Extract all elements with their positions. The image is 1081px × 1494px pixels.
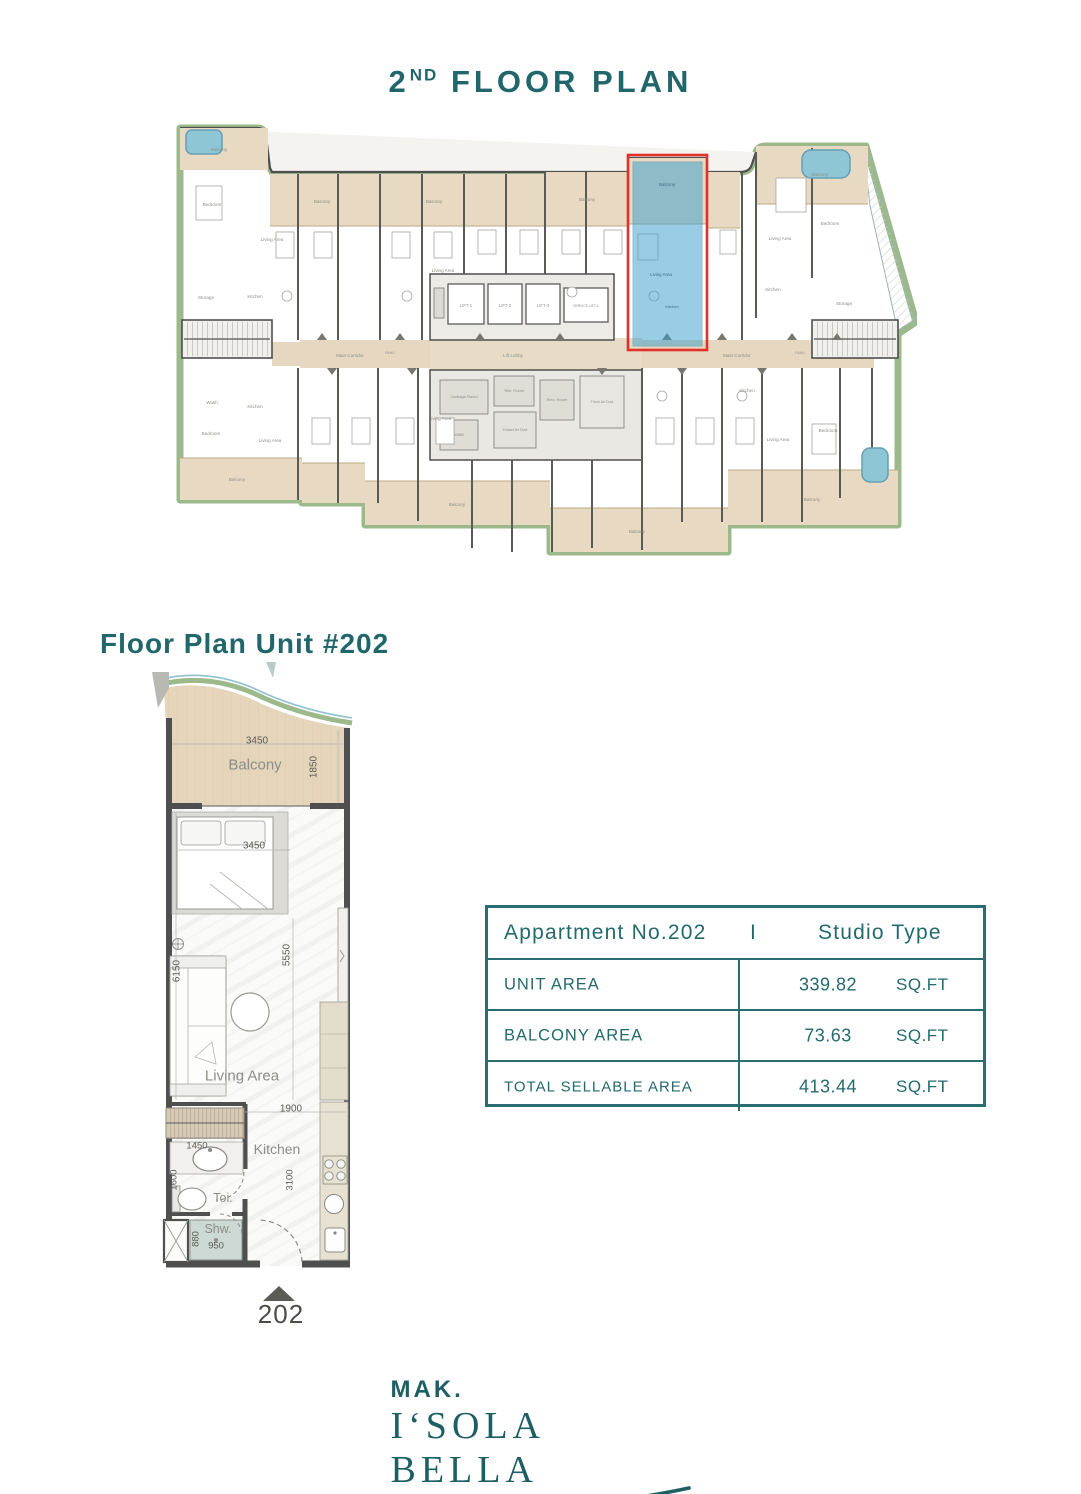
unit-202-highlight-group: Balcony Living Area Kitchen bbox=[628, 155, 707, 350]
bed bbox=[172, 812, 288, 914]
dim-shower-height: 880 bbox=[191, 1231, 202, 1247]
highlight-kitchen-label: Kitchen bbox=[665, 304, 678, 309]
dim-shower-width: 950 bbox=[208, 1241, 224, 1252]
bedroom-label: Bedroom bbox=[819, 428, 838, 433]
balcony-label: Balcony bbox=[804, 497, 821, 502]
brochure-page: 2ND FLOOR PLAN bbox=[0, 0, 1081, 1494]
table-header-type: Studio Type bbox=[818, 921, 942, 945]
lift-lobby-label: Lift Lobby bbox=[503, 353, 524, 358]
garbage-room-label: Garbage Room bbox=[450, 394, 478, 399]
bedroom-label: Bedroom bbox=[202, 431, 221, 436]
dim-kitchen-height: 3100 bbox=[285, 1169, 296, 1190]
lift-3-label: LIFT-3 bbox=[537, 303, 550, 308]
kitchen-label: Kitchen bbox=[247, 294, 263, 299]
balcony-label: Balcony bbox=[426, 199, 443, 204]
unit-info-table: Appartment No.202 I Studio Type UNIT ARE… bbox=[485, 905, 986, 1107]
balcony-label: Balcony bbox=[229, 477, 246, 482]
balcony-label: Balcony bbox=[812, 172, 829, 177]
dim-left-height: 6150 bbox=[172, 960, 183, 982]
unit-floor-plan: 3450 1850 Balcony 3450 6150 5550 Living … bbox=[150, 672, 360, 1278]
storage-label: Storage bbox=[198, 295, 215, 300]
living-area-label: Living Area bbox=[261, 237, 284, 242]
dim-balcony-depth: 1850 bbox=[309, 756, 320, 778]
coffee-table bbox=[231, 993, 269, 1031]
stairs-left bbox=[182, 320, 272, 358]
dim-kitchen-width: 1900 bbox=[280, 1104, 302, 1115]
fahu-label: FAHU bbox=[795, 351, 805, 355]
pool-bottom-right bbox=[862, 448, 888, 482]
living-room-label: Living Area bbox=[205, 1068, 279, 1085]
shower-room-label: Shw. bbox=[204, 1222, 231, 1236]
wash-label: Wash bbox=[206, 400, 218, 405]
brand-logo: MAK. I‘SOLA BELLA bbox=[0, 1376, 1081, 1494]
lift-2-label: LIFT-2 bbox=[499, 303, 512, 308]
project-name: I‘SOLA BELLA bbox=[391, 1404, 691, 1492]
lift-1-label: LIFT-1 bbox=[460, 303, 473, 308]
lift-lobby bbox=[430, 338, 642, 370]
kitchen-counter bbox=[320, 1102, 348, 1260]
fresh-air-duct-label: Fresh Air Duct bbox=[591, 400, 614, 404]
table-row-balcony-area: BALCONY AREA 73.63 SQ.FT bbox=[488, 1011, 983, 1062]
highlight-balcony-label: Balcony bbox=[659, 182, 676, 187]
tele-room-label: Tele. Room bbox=[504, 388, 525, 393]
fahu-label: FAHU bbox=[385, 351, 395, 355]
column-divider bbox=[738, 960, 740, 1009]
lift-core: LIFT-1 LIFT-2 LIFT-3 SERVICE LIFT-1 bbox=[430, 274, 614, 340]
table-header-apartment: Appartment No.202 bbox=[504, 921, 707, 945]
toilet-room-label: Toi. bbox=[213, 1191, 232, 1205]
storage-label: Storage bbox=[836, 301, 853, 306]
table-row-unit-area: UNIT AREA 339.82 SQ.FT bbox=[488, 960, 983, 1011]
balcony-label: Balcony bbox=[314, 199, 331, 204]
elec-room-label: Elec. Room bbox=[547, 397, 568, 402]
balcony-label: Balcony bbox=[579, 197, 596, 202]
main-corridor-label: Main Corridor bbox=[723, 353, 751, 358]
ceiling-fixture-icon bbox=[173, 939, 184, 950]
terrace-glass-edge bbox=[862, 148, 914, 332]
service-lift-label: SERVICE LIFT-1 bbox=[573, 304, 599, 308]
extract-air-duct-label: Extract Air Duct bbox=[503, 428, 528, 432]
wmb-label: WMB bbox=[454, 432, 464, 437]
unit-202-highlight-fill bbox=[633, 162, 702, 346]
cabinet-mid bbox=[320, 1002, 348, 1100]
building-floor-plan: LIFT-1 LIFT-2 LIFT-3 SERVICE LIFT-1 Garb… bbox=[172, 118, 917, 568]
service-core: Garbage Room Tele. Room Elec. Room Fresh… bbox=[430, 370, 642, 460]
shaft-box bbox=[164, 1220, 188, 1262]
living-area-label: Living Area bbox=[769, 236, 792, 241]
living-area-label: Living Area bbox=[259, 438, 282, 443]
table-header-separator: I bbox=[750, 921, 757, 945]
dim-vanity-width: 1450 bbox=[186, 1141, 207, 1152]
tv-console bbox=[338, 908, 348, 1004]
page-title: 2ND FLOOR PLAN bbox=[0, 64, 1081, 100]
living-area-label: Living Area bbox=[432, 268, 455, 273]
dim-balcony-width: 3450 bbox=[246, 736, 268, 747]
balcony-room-label: Balcony bbox=[228, 757, 281, 774]
kitchen-room-label: Kitchen bbox=[254, 1141, 301, 1157]
living-area-label: Living Area bbox=[767, 437, 790, 442]
dim-inner-height: 5550 bbox=[282, 944, 293, 966]
kitchen-label: Kitchen bbox=[739, 388, 755, 393]
balcony-label: Balcony bbox=[449, 502, 466, 507]
corridor-left-stub bbox=[272, 342, 300, 366]
kitchen-label: Kitchen bbox=[247, 404, 263, 409]
balcony-label: Balcony bbox=[629, 529, 646, 534]
table-row-total-area: TOTAL SELLABLE AREA 413.44 SQ.FT bbox=[488, 1062, 983, 1111]
kitchen-label: Kitchen bbox=[765, 287, 781, 292]
table-header: Appartment No.202 I Studio Type bbox=[488, 908, 983, 960]
stairs-right bbox=[812, 320, 898, 358]
dim-toilet-height: 1600 bbox=[169, 1169, 180, 1190]
balcony-label: Balcony bbox=[211, 147, 228, 152]
bedroom-label: Bedroom bbox=[821, 221, 840, 226]
wardrobe bbox=[166, 1108, 244, 1138]
logo-swoosh-icon bbox=[391, 1482, 701, 1494]
main-corridor-label: Main Corridor bbox=[336, 353, 364, 358]
brand-name: MAK. bbox=[391, 1376, 691, 1404]
highlight-living-label: Living Area bbox=[650, 272, 672, 277]
living-area-label: Living Area bbox=[429, 416, 452, 421]
unit-plan-heading: Floor Plan Unit #202 bbox=[100, 628, 389, 660]
unit-number: 202 bbox=[251, 1299, 311, 1330]
column-divider bbox=[738, 1062, 740, 1111]
dim-bed-width: 3450 bbox=[243, 841, 265, 852]
bedroom-label: Bedroom bbox=[203, 202, 222, 207]
column-divider bbox=[738, 1011, 740, 1060]
